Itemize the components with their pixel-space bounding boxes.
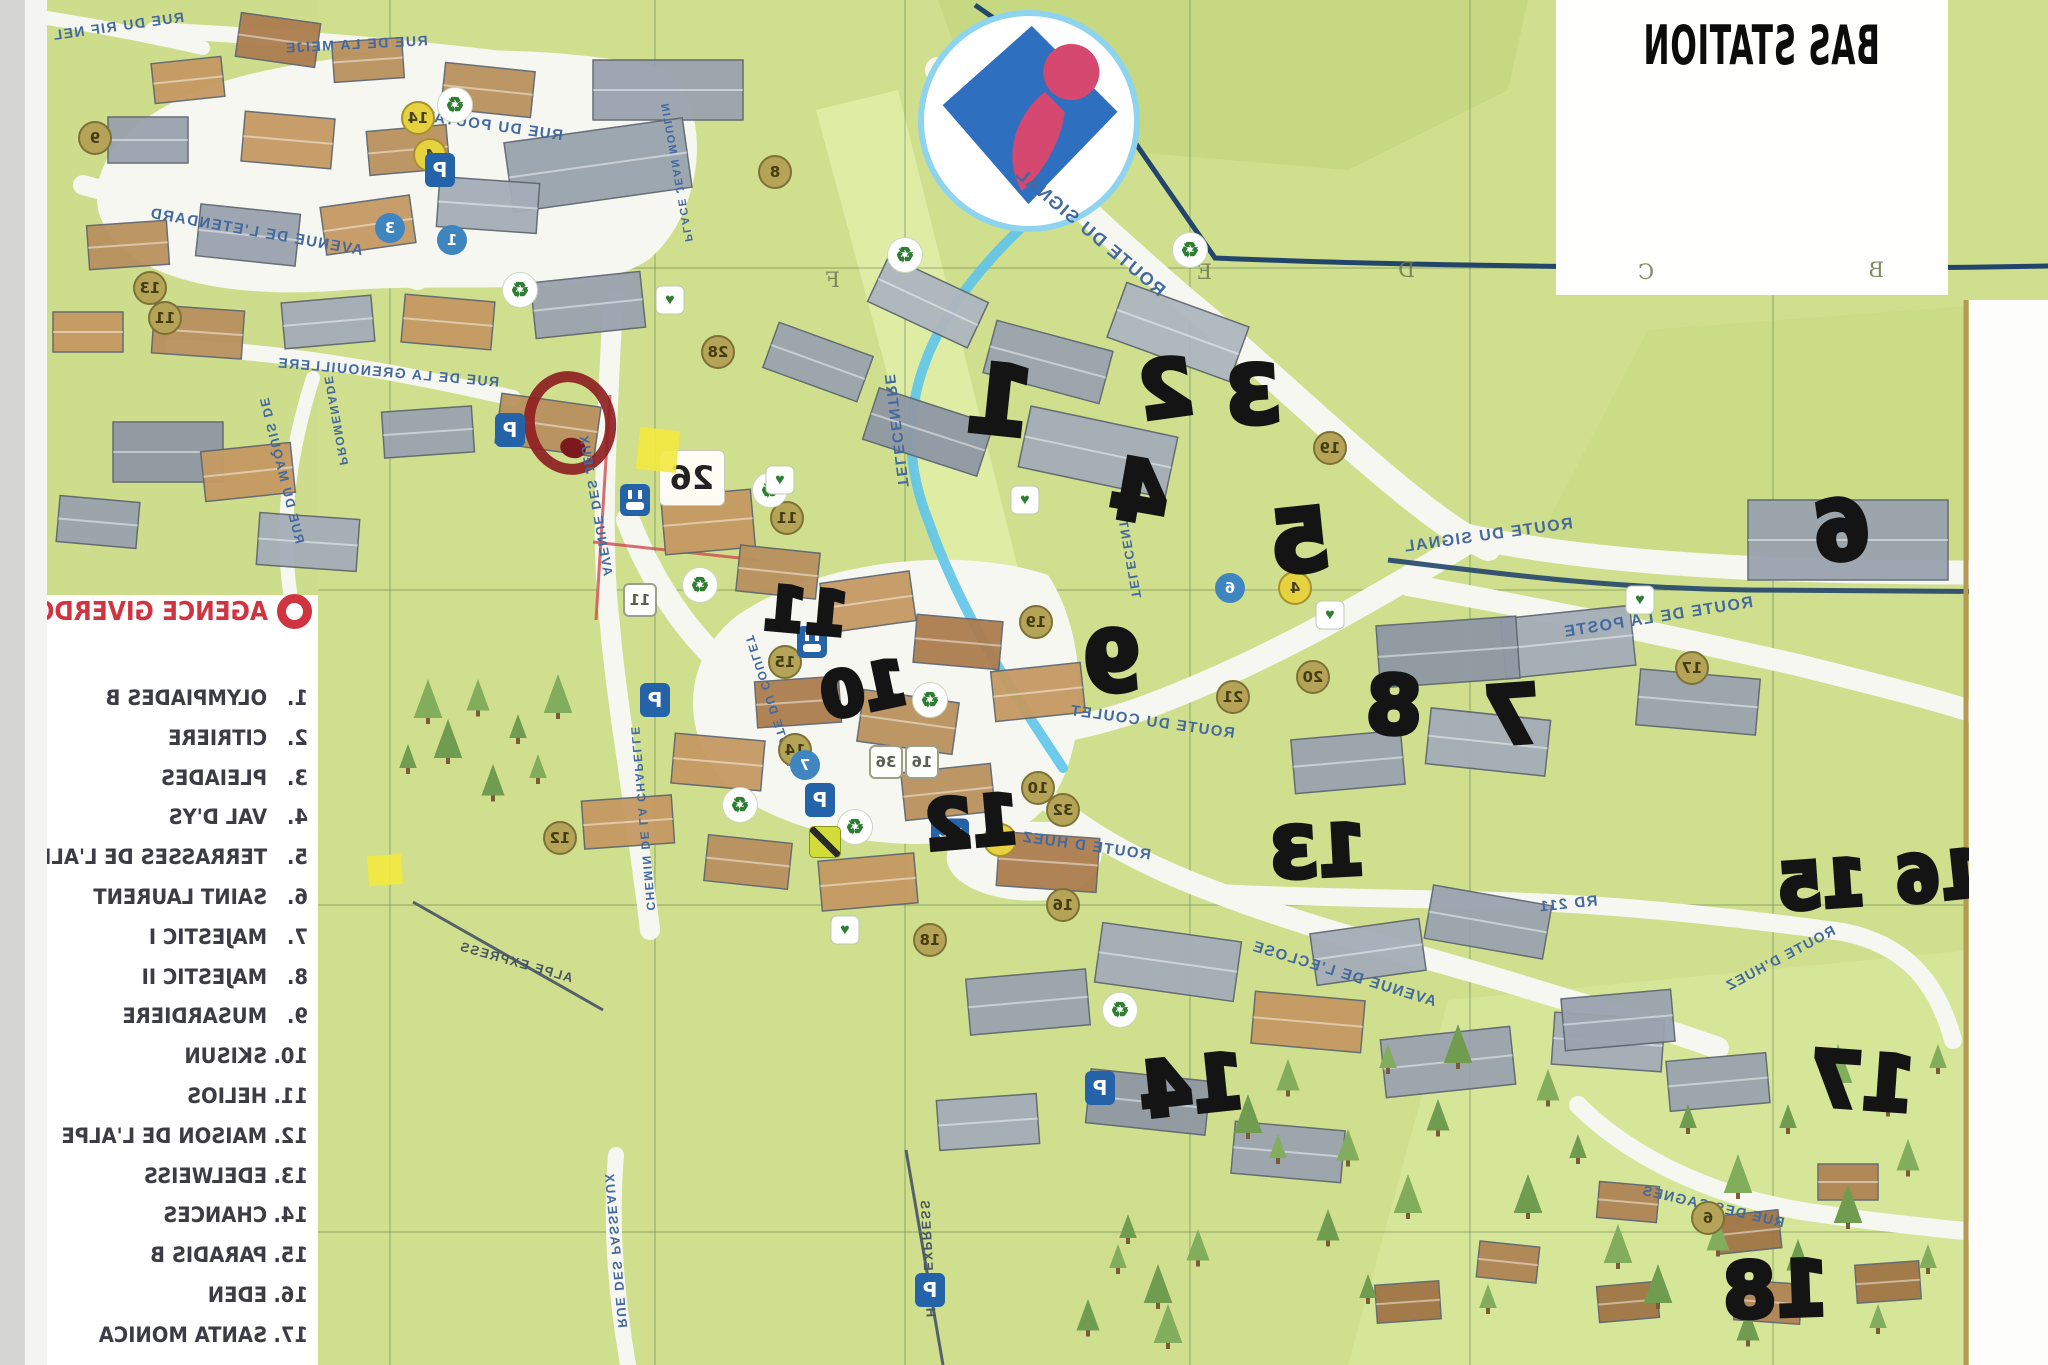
grid-letter: C bbox=[1638, 260, 1654, 284]
heart-icon: ♥ bbox=[766, 466, 795, 495]
page-margin bbox=[1969, 300, 2048, 1365]
highlight-box bbox=[367, 854, 403, 886]
map-badge: 6 bbox=[1215, 573, 1245, 603]
map-badge: 36 bbox=[869, 745, 903, 779]
parking-icon: P bbox=[915, 1273, 945, 1307]
heart-icon: ♥ bbox=[1316, 601, 1345, 630]
map-badge: 17 bbox=[1675, 651, 1709, 685]
map-badge: 12 bbox=[543, 821, 577, 855]
map-badge: 9 bbox=[78, 121, 112, 155]
recycle-icon: ♻ bbox=[1102, 992, 1138, 1028]
plug-icon bbox=[620, 484, 650, 516]
recycle-icon: ♻ bbox=[887, 237, 923, 273]
road-label: ROUTE DU SIGNAL bbox=[1011, 163, 1170, 301]
map-badge: 19 bbox=[1019, 605, 1053, 639]
road-label: ALPE EXPRESS bbox=[457, 939, 574, 986]
map-badge: 28 bbox=[701, 335, 735, 369]
road-label: PROMENADE bbox=[321, 374, 351, 467]
handwritten-number: 17 bbox=[1807, 1040, 1918, 1123]
grid-letter: B bbox=[1869, 258, 1884, 282]
map-badge: 19 bbox=[1313, 431, 1347, 465]
handwritten-number: 15 bbox=[1775, 851, 1868, 921]
parking-icon: P bbox=[1085, 1071, 1115, 1105]
road-label: PLACE JEAN MOULIN bbox=[658, 101, 694, 243]
road-label: RUE DE LA MEIJE bbox=[284, 32, 428, 55]
road-label: AVENUE DE L'ETENDARD bbox=[148, 205, 364, 259]
map-badge: 32 bbox=[1046, 793, 1080, 827]
recycle-icon: ♻ bbox=[1172, 232, 1208, 268]
scan-edge-white bbox=[25, 0, 47, 1365]
mirrored-scan: BAS STATION AGENCE GIVERDON 1.OLYMPIADES… bbox=[0, 0, 2048, 1365]
road-label: ROUTE D'HUEZ bbox=[1722, 922, 1838, 994]
road-label: ROUTE DE LA POSTE bbox=[1562, 594, 1754, 642]
heart-icon: ♥ bbox=[831, 916, 860, 945]
recycle-icon: ♻ bbox=[912, 682, 948, 718]
highlight-box bbox=[636, 427, 680, 473]
road-label: RUE DU MAQUIS DE bbox=[256, 395, 307, 545]
parking-icon: P bbox=[495, 413, 525, 447]
map-badge: 6 bbox=[1691, 1201, 1725, 1235]
heart-icon: ♥ bbox=[1011, 486, 1040, 515]
handwritten-number: 11 bbox=[762, 578, 850, 645]
map-badge: 8 bbox=[758, 155, 792, 189]
map-badge: 7 bbox=[790, 750, 820, 780]
handwritten-number: 2 bbox=[1134, 348, 1199, 433]
handwritten-number: 1 bbox=[962, 351, 1038, 452]
map-badge: 14 bbox=[401, 101, 435, 135]
scanned-map-page: BAS STATION AGENCE GIVERDON 1.OLYMPIADES… bbox=[0, 0, 2048, 1365]
map-badge: 11 bbox=[148, 301, 182, 335]
recycle-icon: ♻ bbox=[437, 87, 473, 123]
handwritten-number: 7 bbox=[1481, 674, 1542, 758]
road-label: RUE DES PASSEAUX bbox=[602, 1172, 631, 1329]
map-badge: 16 bbox=[905, 745, 939, 779]
recycle-icon: ♻ bbox=[682, 567, 718, 603]
handwritten-number: 13 bbox=[1268, 814, 1369, 889]
recycle-icon: ♻ bbox=[502, 272, 538, 308]
road-label: RD 211 bbox=[1538, 892, 1599, 915]
map-badge: 3 bbox=[375, 213, 405, 243]
handwritten-number: 8 bbox=[1365, 665, 1423, 747]
heart-icon: ♥ bbox=[656, 286, 685, 315]
map-badge: 11 bbox=[623, 583, 657, 617]
map-badge: 16 bbox=[1046, 888, 1080, 922]
handwritten-number: 18 bbox=[1722, 1250, 1830, 1330]
handwritten-number: 4 bbox=[1104, 446, 1176, 539]
map-badge: 1 bbox=[437, 225, 467, 255]
handwritten-number: 6 bbox=[1808, 487, 1876, 576]
parking-icon: P bbox=[425, 153, 455, 187]
grid-letter: F bbox=[825, 268, 840, 292]
sign-icon bbox=[809, 826, 841, 858]
map-annotations: BCDEFROUTE DU SIGNALROUTE DU SIGNALROUTE… bbox=[0, 0, 2048, 1365]
recycle-icon: ♻ bbox=[722, 787, 758, 823]
grid-letter: D bbox=[1398, 258, 1415, 282]
recycle-icon: ♻ bbox=[837, 809, 873, 845]
road-label: RUE DU RIF NEL bbox=[51, 9, 185, 43]
handwritten-number: 3 bbox=[1223, 355, 1283, 438]
road-label: TELECENTRE bbox=[881, 372, 912, 488]
road-label: ROUTE D HUEZ bbox=[1020, 829, 1152, 864]
map-badge: 13 bbox=[133, 271, 167, 305]
road-label: RUE DE LA GRENOUILLERE bbox=[276, 354, 500, 389]
parking-icon: P bbox=[640, 683, 670, 717]
handwritten-number: 12 bbox=[922, 786, 1022, 862]
map-badge: 21 bbox=[1216, 680, 1250, 714]
handwritten-number: 5 bbox=[1266, 496, 1335, 588]
road-label: ROUTE DU SIGNAL bbox=[1402, 515, 1574, 557]
handwritten-number: 14 bbox=[1135, 1043, 1248, 1130]
handwritten-number: 9 bbox=[1079, 618, 1145, 707]
scan-edge-gray bbox=[0, 0, 25, 1365]
heart-icon: ♥ bbox=[1626, 586, 1655, 615]
parking-icon: P bbox=[805, 783, 835, 817]
map-badge: 20 bbox=[1296, 660, 1330, 694]
road-label: AVENUE DES JEUX bbox=[576, 433, 616, 577]
map-badge: 18 bbox=[913, 923, 947, 957]
road-label: AVENUE DE L'ECLOSE bbox=[1250, 938, 1439, 1010]
handwritten-number: 10 bbox=[815, 651, 912, 730]
road-label: CHEMIN DE LA CHAPELLE bbox=[628, 725, 658, 911]
